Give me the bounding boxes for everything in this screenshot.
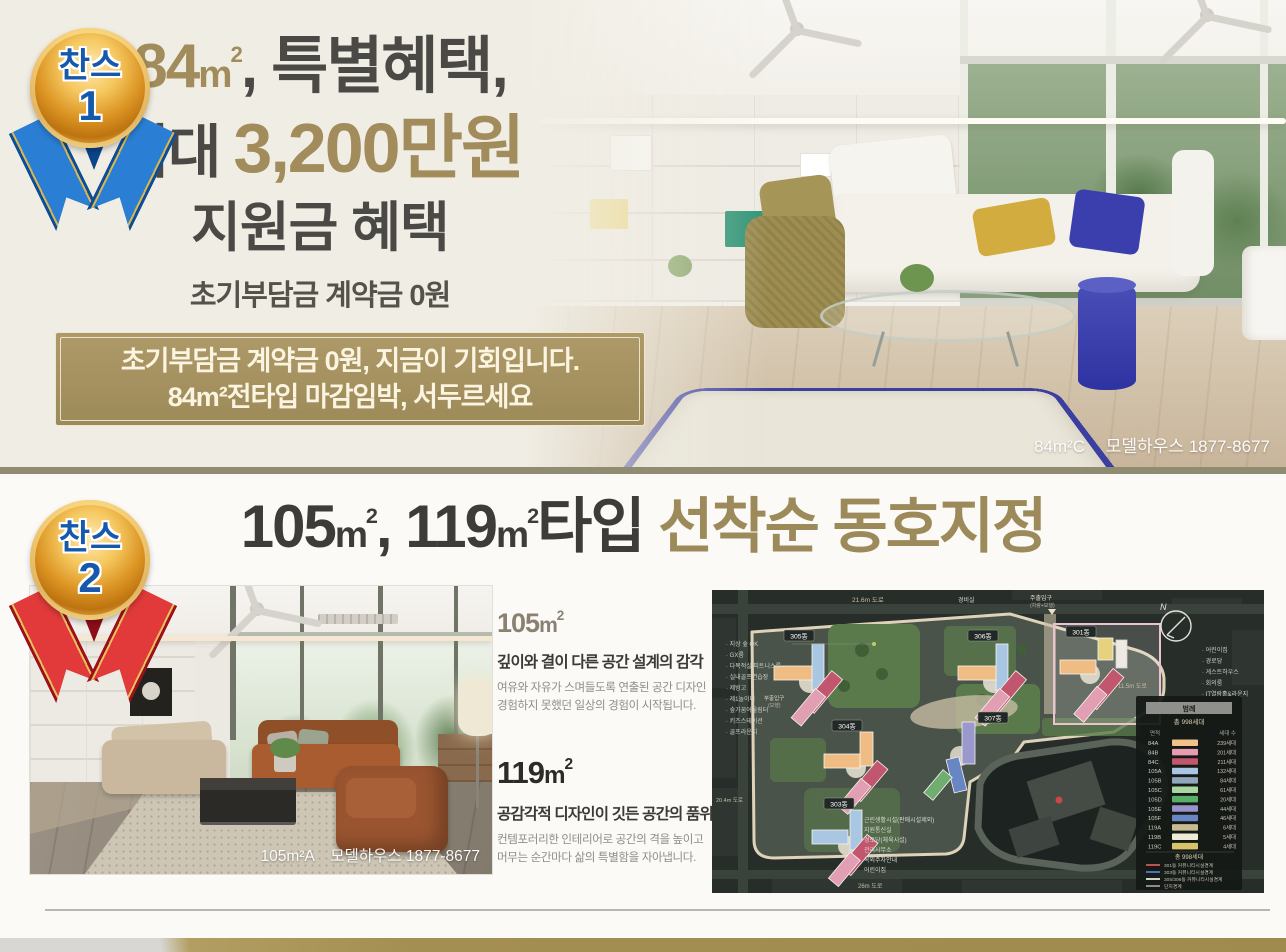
type-119-body-2: 머무는 순간마다 삶의 특별함을 자아냅니다. [497,849,729,867]
legend-row-count: 211세대 [1217,758,1236,766]
type-119-heading: 119m2 [497,755,729,791]
boundary-line-label: 301동 커뮤니티시설경계 [1164,862,1213,869]
road-label-right: 11.5m 도로 [1118,683,1147,690]
blue-pillow [1068,188,1145,255]
building-label: 307동 [984,714,1002,722]
plant-pot [274,754,296,772]
legend-row-count: 61세대 [1220,786,1236,794]
facility-item: 옥외주차안내 [864,856,897,864]
sofa-armrest [1172,150,1214,276]
window-frame-top [960,56,1286,64]
ceiling-fan-icon [1130,0,1280,34]
shelf-box [800,153,832,177]
legend-title: 범례 [1183,704,1196,713]
legend-row-count: 239세대 [1217,739,1236,747]
facility-item: · 골프라운지 [726,728,757,736]
building-label: 305동 [790,632,808,640]
legend-row-count: 4세대 [1223,842,1236,850]
facility-item: 지원통신실 [864,826,892,834]
legend-row-count: 5세대 [1223,833,1236,841]
badge-number: 2 [78,557,101,599]
brown-leather-armchair [336,766,448,852]
legend-row-label: 105D [1148,797,1162,803]
gold-divider-bar [0,467,1286,474]
building-label: 303동 [830,800,848,808]
legend-row-label: 119B [1148,835,1161,841]
legend-row-count: 132세대 [1217,767,1236,775]
legend-row: 105F 46세대 [1148,814,1236,822]
legend-row-count: 44세대 [1220,805,1236,813]
facility-item: · 제1놀이터 [726,695,755,703]
red-marker [1056,797,1063,804]
building-label: 304동 [838,722,856,730]
facility-item: · 키즈스테이션 [726,717,763,725]
facility-item: · 숲가꿈어울림터 [726,706,768,714]
badge-number: 1 [78,85,101,127]
title-119-sup: 2 [527,503,537,528]
facility-item: · 실내골프연습장 [726,673,769,681]
section-2-title: 105m2, 119m2타입 선착순 동호지정 [0,494,1286,560]
facility-item: 경로당(체육시설) [864,836,907,844]
marble-coffee-table [200,778,296,825]
title-119: 119 [405,493,496,560]
glass-coffee-table [820,290,1076,342]
window-mullion [1260,0,1268,254]
side-gate-sub: (보행) [768,702,781,709]
type-119-num: 119 [497,755,544,790]
air-vent [318,614,398,624]
caption-type: 105m²A [261,848,314,865]
type-105-heading: 105m2 [497,608,729,639]
security-office-label: 경비실 [958,596,975,604]
legend-row: 119C 4세대 [1148,842,1236,850]
legend-swatch [1172,824,1198,831]
legend-row-label: 105C [1148,788,1162,794]
type-119-body: 컨템포러리한 인테리어로 공간의 격을 높이고 머무는 순간마다 삶의 특별함을… [497,831,729,867]
table-plant [900,264,934,292]
title-105-sup: 2 [366,503,376,528]
legend-row: 105D 20세대 [1148,795,1236,803]
legend-row: 105A 132세대 [1148,767,1236,775]
facility-item: · 어린이집 [1202,646,1228,654]
title-105-unit: m [335,513,366,555]
main-gate-sub: (차량+보행) [1030,602,1055,609]
legend-swatch [1172,749,1198,756]
ceiling-fan-icon [180,588,330,628]
promo-flyer: 84m²C 모델하우스 1877-8677 찬스 1 84m2, 특별혜택, 최… [0,0,1286,952]
legend-total: 총 998세대 [1175,853,1203,861]
type-105-sup: 2 [557,608,564,623]
type-105-body: 여유와 자유가 스며들도록 연출된 공간 디자인 경험하지 못했던 일상의 경험… [497,679,729,715]
type-119-body-1: 컨템포러리한 인테리어로 공간의 격을 높이고 [497,831,729,849]
legend-col-count: 세대 수 [1219,729,1236,737]
boundary-line-label: 단지경계 [1164,883,1182,890]
site-plan-map: 305동 306동 301동 [712,590,1264,893]
type-description-column: 105m2 깊이와 결이 다른 공간 설계의 감각 여유와 자유가 스며들도록 … [497,608,729,867]
facility-item: · 회의룸 [1202,679,1223,687]
legend-row-label: 105F [1148,816,1162,822]
caption-phone: 모델하우스 1877-8677 [1106,437,1270,456]
facility-item: 어린이집 [864,866,886,874]
side-gate-label: 부출입구 [764,694,784,702]
legend-row-label: 105A [1148,769,1162,775]
legend-panel: 범례 총 998세대 면적 세대 수 84A 239세대 84B 201세대 8… [1136,696,1242,890]
legend-row-label: 119A [1148,826,1161,832]
boundary-line-label: 305/306동 커뮤니티시설경계 [1164,876,1222,883]
facility-item: · 제빙고 [726,684,747,692]
type-119-unit: m [544,762,565,789]
building-label: 301동 [1072,628,1090,636]
legend-swatch [1172,758,1198,765]
legend-row-count: 6세대 [1223,824,1236,832]
headline-84-sup: 2 [230,42,240,67]
legend-row: 105E 44세대 [1148,805,1236,813]
badge-label: 찬스 [59,49,122,83]
gold-medal-icon: 찬스 1 [30,28,150,148]
badge-label: 찬스 [59,521,122,555]
compass-n-label: N [1160,602,1167,612]
legend-row-label: 105E [1148,807,1162,813]
facility-item: · 게스트하우스 [1202,668,1239,676]
type-119-subtitle: 공감각적 디자인이 깃든 공간의 품위 [497,802,729,824]
legend-swatch [1172,740,1198,747]
headline-amount: 3,200만원 [233,109,523,187]
legend-row-count: 201세대 [1217,748,1236,756]
facility-item: · 경로당 [1202,657,1223,665]
banner-line-2: 84m²전타입 마감임박, 서두르세요 [168,379,533,415]
chance-1-badge: 찬스 1 [20,22,170,227]
type-105-unit: m [539,614,557,637]
legend-swatch [1172,805,1198,812]
road-label-top: 21.6m 도로 [852,596,884,604]
type-105-subtitle: 깊이와 결이 다른 공간 설계의 감각 [497,650,729,672]
title-comma: , [376,493,405,560]
boundary-line-label: 303동 커뮤니티시설경계 [1164,869,1213,876]
side-cabinet [1242,246,1286,340]
main-gate-label: 주출입구 [1030,594,1053,602]
building-label: 306동 [974,632,992,640]
chance-2-badge: 찬스 2 [20,494,170,699]
legend-row: 105C 61세대 [1148,786,1236,794]
legend-row-label: 84A [1148,741,1158,747]
bottom-rule-line [45,909,1270,911]
legend-col-area: 면적 [1150,729,1160,737]
photo-caption: 105m²A 모델하우스 1877-8677 [261,844,480,866]
banner-line-1: 초기부담금 계약금 0원, 지금이 기회입니다. [121,343,579,379]
legend-swatch [1172,777,1198,784]
gold-medal-icon: 찬스 2 [30,500,150,620]
legend-swatch [1172,787,1198,794]
facility-item: · 지상 숲 OK [726,640,758,648]
legend-row-label: 105B [1148,779,1162,785]
type-105-body-2: 경험하지 못했던 일상의 경험이 시작됩니다. [497,697,729,715]
facility-item: 관리사무소 [864,846,892,854]
headline-84-unit: m [198,53,230,96]
legend-row: 105B 84세대 [1148,777,1236,785]
legend-subtitle: 총 998세대 [1174,717,1205,726]
type-105-num: 105 [497,608,539,638]
photo-caption: 84m²C 모델하우스 1877-8677 [1034,432,1270,457]
type-119-sup: 2 [565,756,573,773]
footer-bar [0,938,1286,952]
type-105-body-1: 여유와 자유가 스며들도록 연출된 공간 디자인 [497,679,729,697]
section-1: 84m²C 모델하우스 1877-8677 찬스 1 84m2, 특별혜택, 최… [0,0,1286,467]
legend-row-count: 46세대 [1220,814,1236,822]
legend-row-label: 84B [1148,750,1158,756]
window-mullion [378,586,383,740]
title-first-come: 선착순 동호지정 [658,493,1045,560]
title-type-label: 타입 [537,493,658,560]
legend-swatch [1172,815,1198,822]
legend-swatch [1172,796,1198,803]
floor-lamp-shade [458,678,492,736]
headline-84-rest: , 특별혜택, [241,32,507,101]
legend-row-count: 20세대 [1220,795,1236,803]
facility-item: 근린생활시설(판매시설제외) [864,816,934,824]
facility-item: · 다목적실/피트니스룸 [726,662,781,670]
legend-swatch [1172,768,1198,775]
caption-phone: 모델하우스 1877-8677 [330,848,480,865]
legend-swatch [1172,834,1198,841]
legend-row-label: 84C [1148,760,1159,766]
title-105: 105 [241,493,335,560]
legend-row-count: 84세대 [1220,777,1236,785]
blue-cylinder-stool [1078,280,1136,390]
legend-swatch [1172,843,1198,850]
headline-line-4: 초기부담금 계약금 0원 [40,281,600,312]
title-119-unit: m [496,513,527,555]
callout-dot [872,642,876,646]
gold-banner: 초기부담금 계약금 0원, 지금이 기회입니다. 84m²전타입 마감임박, 서… [55,332,645,426]
road-label-bottom: 26m 도로 [858,883,883,890]
caption-type: 84m²C [1034,437,1085,456]
legend-row-label: 119C [1148,844,1161,850]
